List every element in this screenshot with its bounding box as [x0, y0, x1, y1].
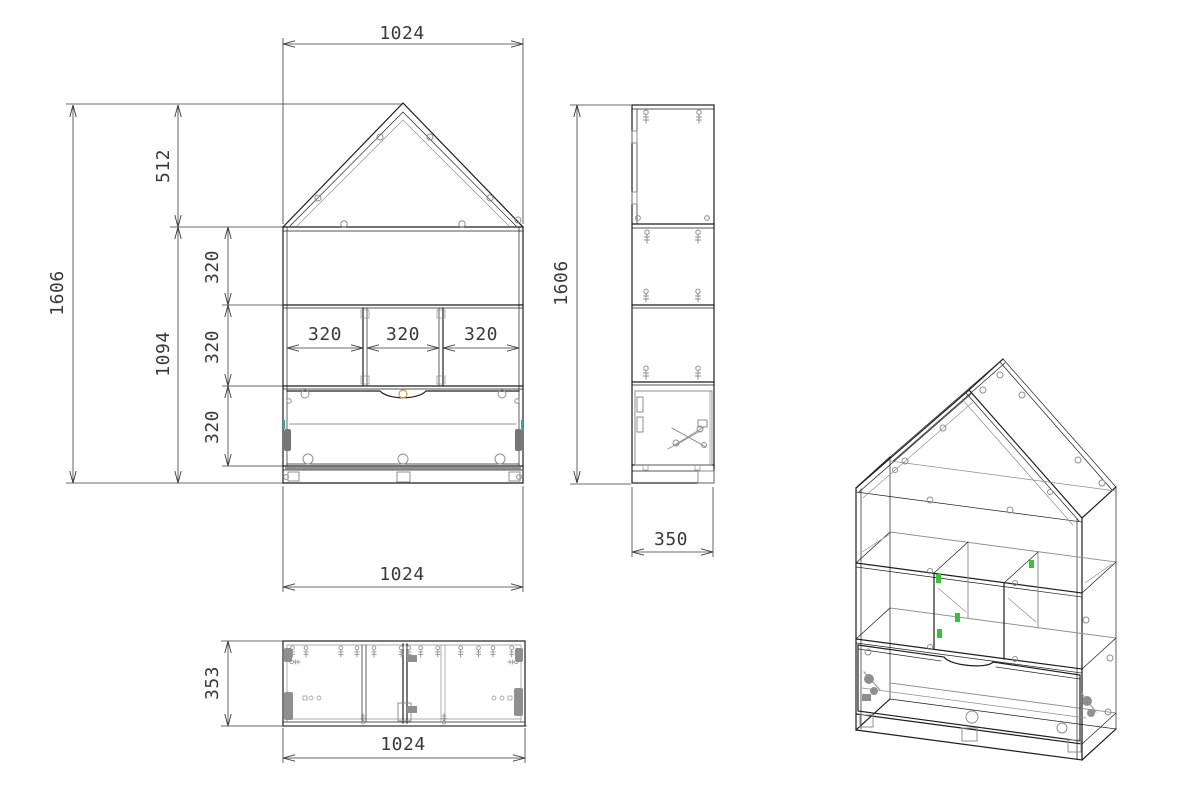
dim-top-width: 1024 — [380, 734, 425, 755]
top-view: 353 1024 — [202, 641, 527, 763]
isometric-view — [856, 359, 1116, 760]
front-view: 1024 512 1606 1094 320 320 320 320 320 3… — [47, 23, 523, 592]
cam-lock-green — [936, 574, 941, 583]
cam-lock-green — [1029, 560, 1034, 568]
isometric-outline — [856, 359, 1116, 760]
drawer-handle-fitting — [399, 390, 407, 398]
front-view-geometry — [283, 103, 523, 483]
side-view-geometry — [632, 105, 714, 483]
dim-front-compartment-1: 320 — [308, 324, 342, 345]
dim-front-total-height: 1606 — [47, 270, 68, 315]
cam-lock-green — [955, 613, 960, 622]
drawer-slide-right — [515, 429, 522, 451]
technical-drawing: 1024 512 1606 1094 320 320 320 320 320 3… — [0, 0, 1191, 793]
dim-front-width-top: 1024 — [379, 23, 424, 44]
front-view-dimensions: 1024 512 1606 1094 320 320 320 320 320 3… — [47, 23, 523, 592]
dim-front-compartment-2: 320 — [386, 324, 420, 345]
top-view-dimensions: 353 1024 — [202, 641, 527, 763]
side-view: 1606 350 — [551, 105, 714, 557]
top-view-geometry — [283, 641, 525, 726]
cam-lock-green — [937, 629, 942, 638]
dim-front-width-bottom: 1024 — [379, 564, 424, 585]
dim-front-row-3: 320 — [202, 410, 223, 444]
dim-top-depth: 353 — [202, 666, 223, 700]
dim-front-roof-height: 512 — [153, 149, 174, 183]
dim-front-row-2: 320 — [202, 330, 223, 364]
dim-front-body-height: 1094 — [153, 331, 174, 376]
front-view-hardware — [284, 134, 522, 479]
dim-side-depth: 350 — [654, 529, 688, 550]
drawing-canvas: 1024 512 1606 1094 320 320 320 320 320 3… — [0, 0, 1191, 793]
dim-front-row-1: 320 — [202, 250, 223, 284]
lid-stay-hardware — [668, 420, 707, 449]
dim-front-compartment-3: 320 — [464, 324, 498, 345]
drawer-slide-left — [284, 429, 291, 451]
isometric-hardware — [860, 497, 1113, 752]
dim-side-height: 1606 — [551, 260, 572, 305]
